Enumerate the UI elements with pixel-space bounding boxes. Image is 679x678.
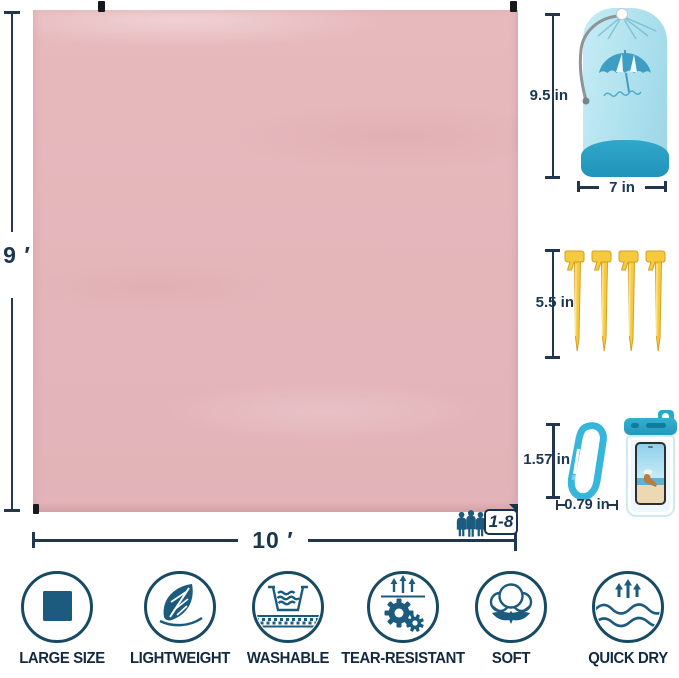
cotton-icon [475,571,547,643]
badge-corner-mark [509,504,518,513]
umbrella-logo-icon [592,48,658,102]
people-capacity-icon [454,509,488,539]
cord-toggle [616,8,628,20]
tent-stakes [562,248,672,360]
blanket-corner-loop [510,1,517,12]
waves-icon [592,571,664,643]
phone-camera-dot [648,446,653,448]
carabiner-wdim-cap-right [616,500,618,510]
blanket-corner-loop [98,1,105,12]
sack-wdim-line [580,186,599,189]
leaf-icon [144,571,216,643]
product-infographic: 9 ′ 10 ′ 1-8 [0,0,679,678]
sack-dim-cap-bottom [545,176,560,179]
sack-wdim-line [645,186,664,189]
width-dim-line [32,539,238,542]
height-dim-line [11,11,14,232]
wash-basin-icon [252,571,324,643]
carabiner-dim-cap-bottom [546,496,560,499]
blanket-corner-loop [33,504,39,514]
scene-person [641,468,660,494]
sack-wdim-cap-right [664,181,667,192]
stake-dim-cap-bottom [545,356,560,359]
sack-bottom-band [581,140,669,177]
phone-pouch [622,410,679,520]
carabiner-height-label: 1.57 in [504,451,570,468]
blanket [33,10,518,512]
phone-screen-beach-scene [637,444,664,503]
stuff-sack [580,4,672,184]
sack-height-label: 9.5 in [506,87,568,104]
carabiner-width-label: 0.79 in [564,497,610,513]
pouch-clamp-slot [646,423,666,428]
feature-label: QUICK DRY [558,650,679,668]
pouch-clamp-slot [631,423,639,428]
height-dim-cap-bottom [4,509,20,512]
carabiner-wdim-line [608,504,616,506]
square-icon [21,571,93,643]
width-dim-line [308,539,516,542]
blanket-width-label: 10 ′ [238,527,308,554]
blanket-height-label: 9 ′ [0,242,34,269]
gears-icon [367,571,439,643]
sack-width-label: 7 in [599,179,645,196]
carabiner [565,419,611,505]
height-dim-line [11,298,14,511]
